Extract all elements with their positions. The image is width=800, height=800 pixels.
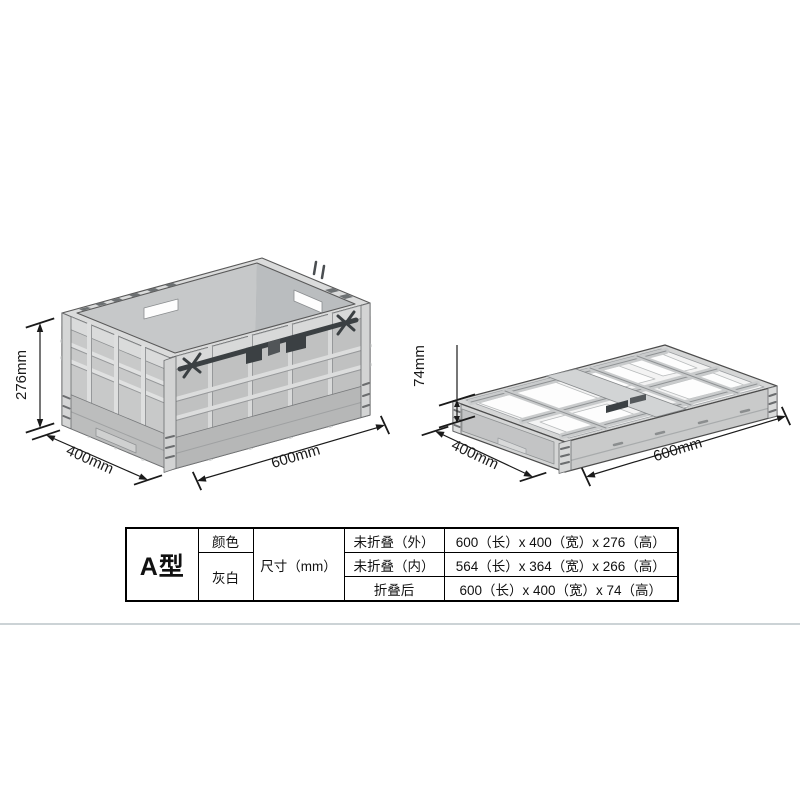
dimensions-cell-inner: 564（长）x 364（宽）x 266（高） [444, 553, 678, 577]
color-value-cell: 灰白 [198, 553, 253, 602]
table-row: A型 颜色 尺寸（mm） 未折叠（外） 600（长）x 400（宽）x 276（… [126, 528, 678, 553]
state-cell-inner: 未折叠（内） [344, 553, 444, 577]
size-label-cell: 尺寸（mm） [253, 528, 344, 601]
unfolded-length-label: 600mm [269, 441, 322, 472]
technical-drawings: 276mm 400mm 600mm [0, 0, 800, 800]
color-label-cell: 颜色 [198, 528, 253, 553]
corner-latch-pins [314, 262, 324, 278]
model-cell: A型 [126, 528, 198, 601]
corner-post [361, 303, 370, 418]
folded-crate-drawing [453, 345, 777, 474]
section-divider-line [0, 623, 800, 625]
table-row: 灰白 未折叠（内） 564（长）x 364（宽）x 266（高） [126, 553, 678, 577]
folded-height-label: 74mm [411, 345, 428, 387]
unfolded-crate-drawing [62, 258, 370, 473]
state-cell-outer: 未折叠（外） [344, 528, 444, 553]
spec-table: A型 颜色 尺寸（mm） 未折叠（外） 600（长）x 400（宽）x 276（… [125, 527, 679, 602]
dimensions-cell-outer: 600（长）x 400（宽）x 276（高） [444, 528, 678, 553]
product-spec-page: 276mm 400mm 600mm [0, 0, 800, 800]
unfolded-depth-label: 400mm [64, 442, 117, 478]
state-cell-folded: 折叠后 [344, 577, 444, 602]
dimensions-cell-folded: 600（长）x 400（宽）x 74（高） [444, 577, 678, 602]
corner-post [62, 313, 71, 429]
dim-height-276: 276mm [13, 318, 54, 432]
unfolded-height-label: 276mm [13, 350, 30, 400]
